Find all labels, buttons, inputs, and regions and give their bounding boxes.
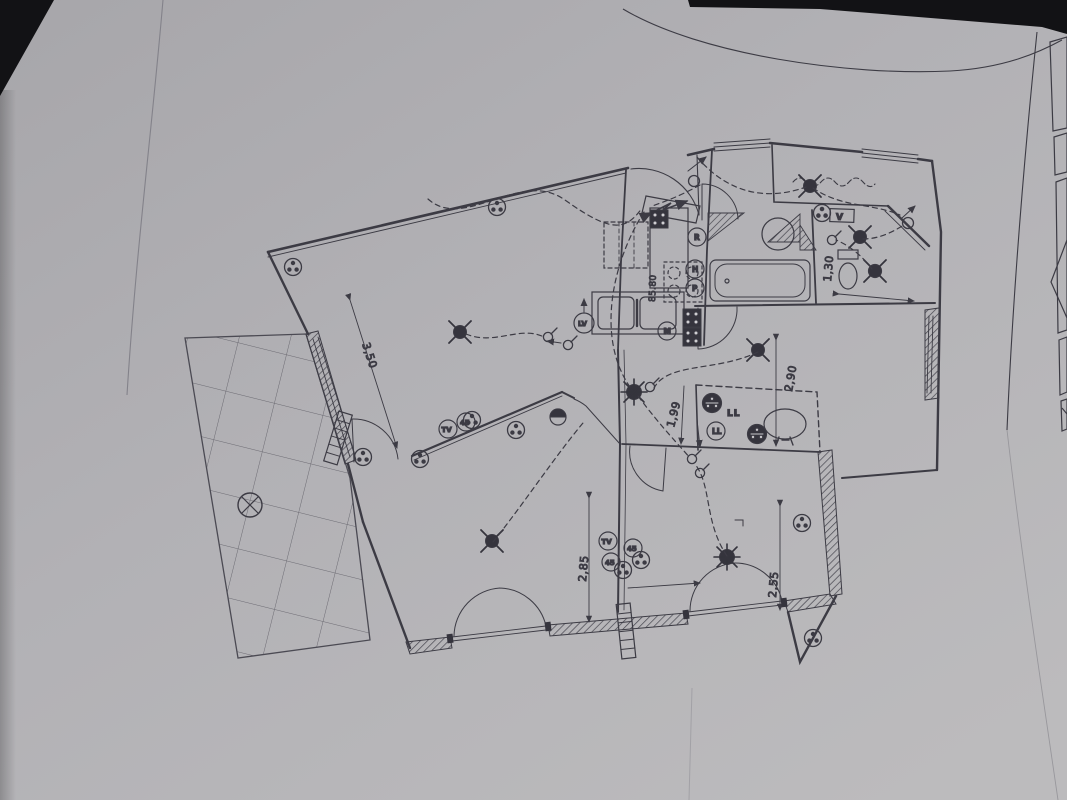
dim-wc: 1,30 [821,255,836,283]
amp45-living-label: 45 [460,419,470,427]
bedroom2-light-icon [714,544,740,570]
dim-kitchen: 85.80 [648,275,659,303]
oven-label: M [664,327,671,336]
dim-bedroom3: 2,85 [576,555,591,583]
shower-socket-2-icon [748,425,767,444]
kitchen-special-socket-3-icon [683,328,701,346]
kitchen-special-socket-1-icon [650,210,668,228]
shower-socket-1-icon [703,394,722,413]
dishwasher-label: LV [578,320,587,328]
tv-outlet-living-label: TV [442,426,453,434]
kitchen-special-socket-2-icon [683,309,701,327]
cooktop-label: P [692,284,698,293]
washing-machine-label: LL [727,409,740,419]
tv-outlet-bedroom3-label: TV [602,538,613,546]
hood-label: H [692,265,698,274]
floor-plan-photo: V LL LL [0,0,1067,800]
corridor-ceiling-light-icon [621,379,647,405]
amp45-bedroom3b-label: 45 [605,559,615,567]
vmc-label: V [836,213,844,223]
paper-sheet [0,0,1067,800]
amp45-bedroom3a-label: 45 [627,545,637,553]
photographed-floor-plan: V LL LL [0,0,1067,800]
paper-edge-shadow [0,90,16,800]
fridge-label: R [694,233,700,242]
dim-bedroom2: 2,55 [766,571,781,599]
washing-machine-circle-label: LL [712,427,722,436]
